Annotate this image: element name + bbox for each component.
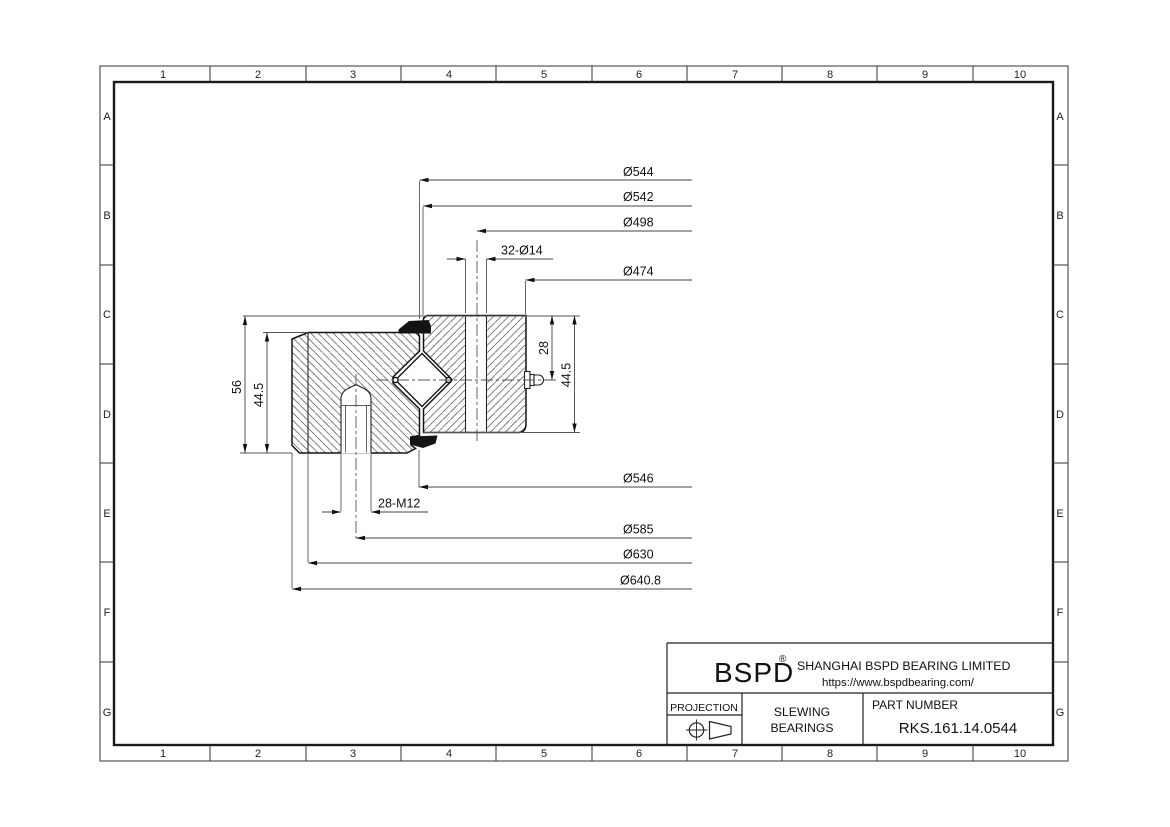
dia14-through-hole (466, 317, 487, 432)
grid-col-label: 6 (636, 69, 642, 81)
top-grid-ticks (210, 66, 973, 82)
grid-col-label: 7 (732, 69, 738, 81)
grid-col-label: 2 (255, 69, 261, 81)
dim-label-dia585: Ø585 (623, 523, 654, 537)
grid-row-label: C (103, 309, 111, 321)
grid-col-label: 9 (922, 748, 928, 760)
grid-col-label: 8 (827, 69, 833, 81)
product-type-line1: SLEWING (774, 705, 830, 719)
grid-row-label: D (103, 409, 111, 421)
grid-col-label: 1 (160, 69, 166, 81)
grid-row-label: B (1056, 210, 1063, 222)
dim-label-dia544: Ø544 (623, 165, 654, 179)
product-type-line2: BEARINGS (771, 721, 834, 735)
grid-row-label: G (1056, 707, 1065, 719)
grid-row-label: B (103, 210, 110, 222)
dim-label-dia498: Ø498 (623, 216, 654, 230)
dim-label-height44-5-left: 44.5 (252, 383, 266, 407)
title-block: BSPD ® SHANGHAI BSPD BEARING LIMITED htt… (667, 643, 1053, 745)
dim-label-height44-5-right: 44.5 (560, 363, 574, 387)
first-angle-projection-icon (686, 720, 731, 741)
bottom-grid-ticks (210, 745, 973, 761)
dim-label-dia546: Ø546 (623, 472, 654, 486)
dim-label-dia542: Ø542 (623, 190, 654, 204)
grid-row-label: E (103, 508, 110, 520)
dim-label-height56: 56 (230, 380, 244, 394)
projection-label: PROJECTION (670, 702, 738, 714)
drawing-sheet: 1 2 3 4 5 6 7 8 9 10 1 2 3 4 5 6 7 8 9 1… (0, 0, 1170, 827)
part-number-value: RKS.161.14.0544 (899, 720, 1017, 737)
part-number-label: PART NUMBER (872, 698, 958, 712)
grid-col-label: 1 (160, 748, 166, 760)
grid-col-label: 3 (350, 69, 356, 81)
grid-col-label: 5 (541, 748, 547, 760)
grid-col-label: 4 (446, 69, 452, 81)
grid-row-label: A (103, 111, 111, 123)
dim-label-dia474: Ø474 (623, 265, 654, 279)
grid-labels-bottom: 1 2 3 4 5 6 7 8 9 10 (160, 748, 1026, 760)
dim-label-dia640-8: Ø640.8 (620, 574, 661, 588)
grid-row-label: F (104, 607, 111, 619)
lower-seal (410, 436, 438, 449)
grid-row-label: F (1057, 607, 1064, 619)
grid-row-label: A (1056, 111, 1064, 123)
grid-col-label: 8 (827, 748, 833, 760)
grid-row-label: D (1056, 409, 1064, 421)
grid-col-label: 4 (446, 748, 452, 760)
registered-mark: ® (779, 654, 787, 665)
dim-label-dia630: Ø630 (623, 548, 654, 562)
engineering-drawing: 1 2 3 4 5 6 7 8 9 10 1 2 3 4 5 6 7 8 9 1… (0, 0, 1170, 827)
grid-col-label: 7 (732, 748, 738, 760)
grid-col-label: 10 (1014, 748, 1026, 760)
grid-row-label: C (1056, 309, 1064, 321)
grid-col-label: 10 (1014, 69, 1026, 81)
grid-col-label: 5 (541, 69, 547, 81)
grid-col-label: 2 (255, 748, 261, 760)
dim-label-28xm12: 28-M12 (378, 497, 420, 511)
grid-col-label: 9 (922, 69, 928, 81)
dim-label-height28: 28 (537, 341, 551, 355)
grid-row-label: E (1056, 508, 1063, 520)
grid-labels-left: A B C D E F G (103, 111, 112, 719)
company-website: https://www.bspdbearing.com/ (822, 677, 975, 689)
bearing-section-view (292, 240, 557, 538)
grid-col-label: 6 (636, 748, 642, 760)
grid-col-label: 3 (350, 748, 356, 760)
grid-labels-top: 1 2 3 4 5 6 7 8 9 10 (160, 69, 1026, 81)
grid-row-label: G (103, 707, 112, 719)
grid-labels-right: A B C D E F G (1056, 111, 1065, 719)
upper-seal (399, 320, 432, 334)
company-name: SHANGHAI BSPD BEARING LIMITED (797, 659, 1010, 673)
dim-label-32xdia14: 32-Ø14 (501, 244, 543, 258)
